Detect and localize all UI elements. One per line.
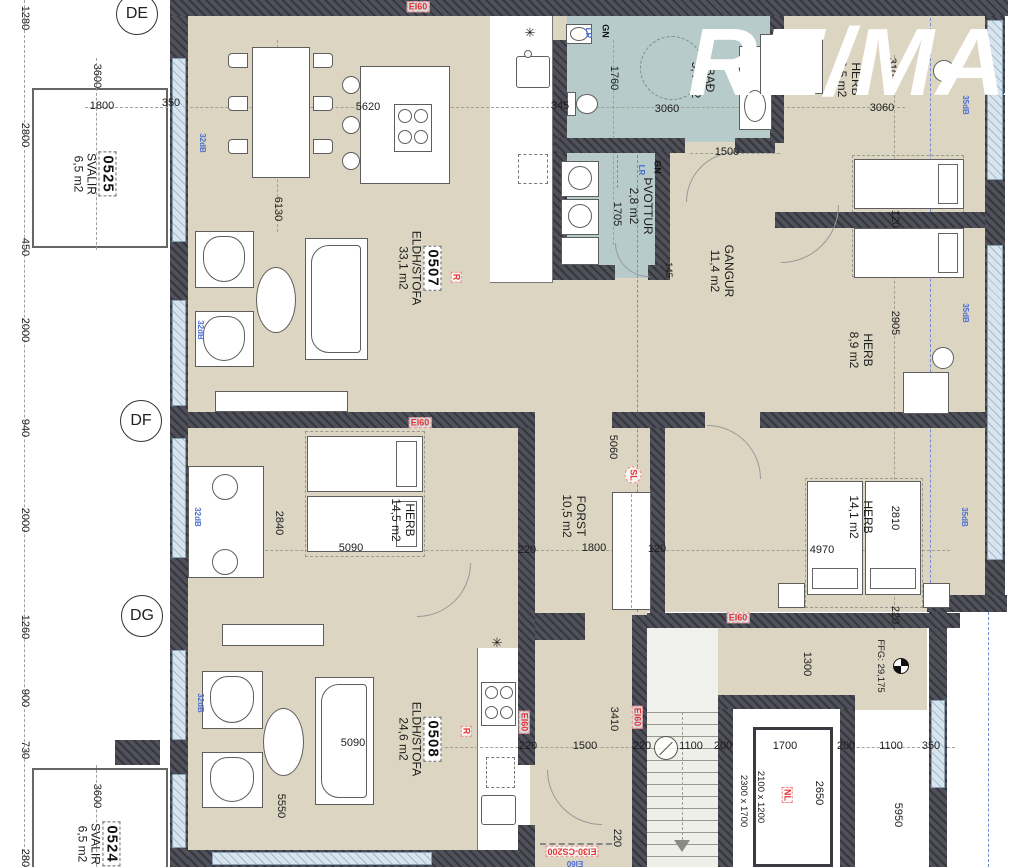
armchair-seat <box>203 236 245 282</box>
dim-1800-balcony: 1800 <box>90 101 114 113</box>
center-line <box>988 612 989 867</box>
cooktop-burner <box>485 706 498 719</box>
stairs-direction-arrow <box>674 840 690 852</box>
level-marker-icon <box>893 658 909 674</box>
dim-1760: 1760 <box>607 66 619 90</box>
pillow <box>938 233 958 273</box>
acoustic-32db-b: 32dB <box>196 320 204 340</box>
bar-stool <box>342 152 360 170</box>
window <box>172 774 186 848</box>
pillow <box>812 568 858 589</box>
pillow <box>938 164 958 204</box>
fixture-star-kitchen-0507: ✳ <box>525 26 536 40</box>
label-sl: SL <box>625 467 642 484</box>
closet-divider <box>631 494 632 608</box>
acoustic-35db-c: 35dB <box>960 507 968 527</box>
stool <box>932 347 954 369</box>
armchair-seat <box>210 676 254 723</box>
wall-mid <box>188 412 535 428</box>
acoustic-35db-b: 35dB <box>961 303 969 323</box>
window <box>172 650 186 740</box>
fixture-star-kitchen-0508: ✳ <box>492 636 503 650</box>
chair <box>313 96 333 111</box>
dim-450: 450 <box>18 238 30 256</box>
dim-5620: 5620 <box>356 102 380 114</box>
cooktop-burner <box>485 686 498 699</box>
label-ffg-level: FFG: 29,175 <box>875 639 885 692</box>
dim-1300: 1300 <box>800 652 812 676</box>
stool <box>212 474 238 500</box>
dim-1500-hall: 1500 <box>573 741 597 753</box>
dim-2905: 2905 <box>888 311 900 335</box>
room-label-herb-145: HERB14,5 m2 <box>390 498 416 541</box>
dim-1700: 1700 <box>773 741 797 753</box>
dim-1705: 1705 <box>610 202 622 226</box>
dim-220-herb141: 220 <box>888 606 900 624</box>
dim-5090-0508: 5090 <box>341 738 365 750</box>
dim-3600-top: 3600 <box>90 64 102 88</box>
dim-220-a: 220 <box>519 741 537 753</box>
dim-2810: 2810 <box>888 506 900 530</box>
dim-2000-b: 2000 <box>18 508 30 532</box>
grid-marker-DE: DE <box>116 0 158 35</box>
dim-350-bottom: 350 <box>922 741 940 753</box>
kitchen-sink <box>516 56 550 88</box>
dim-3600-bottom: 3600 <box>90 784 102 808</box>
dim-3060-bad: 3060 <box>655 104 679 116</box>
label-nl: NL <box>781 787 792 803</box>
dishwasher <box>486 757 515 788</box>
cooktop-burner <box>398 109 412 123</box>
pillow <box>870 568 916 589</box>
dim-200-b: 200 <box>837 741 855 753</box>
dim-940: 940 <box>18 419 30 437</box>
dim-lift-shaft: 2300 x 1700 <box>738 775 748 827</box>
dim-345: 345 <box>551 101 569 113</box>
desk <box>903 372 949 414</box>
tv-bench <box>222 624 324 646</box>
washer-door <box>568 166 592 190</box>
dim-2650: 2650 <box>812 781 824 805</box>
room-label-0525: 0525SVALIR6,5 m2 <box>72 151 117 196</box>
wall-stair-top <box>647 613 960 628</box>
fire-ei60-stair: EI60 <box>727 612 750 623</box>
room-label-gangur: GANGUR11,4 m2 <box>709 245 735 298</box>
window <box>172 438 186 558</box>
dim-5550: 5550 <box>274 794 286 818</box>
dim-5090-herb145: 5090 <box>339 543 363 555</box>
dim-lift-car: 2100 x 1200 <box>755 771 765 823</box>
cooktop-burner <box>500 686 513 699</box>
dim-350-top: 350 <box>162 98 180 110</box>
room-label-herb-141: HERB14,1 m2 <box>848 495 874 538</box>
dim-2800-bottom: 2800 <box>18 849 30 867</box>
dim-6130: 6130 <box>271 197 283 221</box>
dim-3410: 3410 <box>607 707 619 731</box>
dim-1100-b: 1100 <box>879 741 903 753</box>
cooktop-burner <box>414 109 428 123</box>
wall-hall-right <box>650 428 665 615</box>
label-gn-mid: GN <box>652 160 661 174</box>
cooktop-burner <box>414 130 428 144</box>
elevator-wall <box>718 709 733 867</box>
dim-220-b: 220 <box>633 741 651 753</box>
dim-5950: 5950 <box>891 803 903 827</box>
wall-hall-block <box>535 613 585 640</box>
wall-laundry-bottom <box>553 265 615 280</box>
toilet-bowl <box>576 94 598 114</box>
acoustic-32db-d: 32dB <box>196 693 204 713</box>
wall <box>115 740 160 765</box>
dim-1500-bad: 1500 <box>715 147 739 159</box>
label-ei60-blue: EI60 <box>567 859 583 867</box>
dishwasher <box>518 154 548 184</box>
elevator-wall <box>840 709 855 867</box>
dim-1100-a: 1100 <box>679 741 703 753</box>
armchair-seat <box>203 316 245 361</box>
grid-marker-DG: DG <box>121 595 163 637</box>
dim-2000-a: 2000 <box>18 318 30 342</box>
nightstand <box>778 583 805 608</box>
wall-mid <box>612 412 705 428</box>
room-label-0508: 0508ELDH/STOFA24,6 m2 <box>397 702 442 776</box>
coffee-table <box>263 708 304 776</box>
dim-900: 900 <box>18 689 30 707</box>
window <box>212 852 432 865</box>
label-lr-top: LR <box>584 28 592 39</box>
label-r-0507: R <box>450 272 461 283</box>
dim-1260: 1260 <box>18 615 30 639</box>
bar-stool <box>342 116 360 134</box>
kitchen-sink <box>481 795 516 825</box>
room-label-thvottur: ÞVOTTUR2,8 m2 <box>628 177 654 234</box>
dim-220-forst: 220 <box>518 545 536 557</box>
dim-4970: 4970 <box>810 545 834 557</box>
grid-marker-DF: DF <box>120 400 162 442</box>
label-r-0508: R <box>460 726 471 737</box>
label-gn-top: GN <box>600 24 609 38</box>
fire-ei60-hall-right: EI60 <box>631 706 642 729</box>
dim-730: 730 <box>18 741 30 759</box>
chair <box>313 139 333 154</box>
stairs-center-line <box>682 712 683 840</box>
room-label-herb-89: HERB8,9 m2 <box>848 332 874 369</box>
stool <box>212 549 238 575</box>
dining-table <box>252 47 310 178</box>
nightstand <box>923 583 950 608</box>
sofa-seat <box>311 245 361 353</box>
laundry-counter <box>561 237 599 265</box>
tv-bench <box>215 391 348 412</box>
pillow <box>396 441 417 487</box>
armchair-seat <box>210 757 254 802</box>
section-marker-icon <box>654 736 678 760</box>
coffee-table <box>256 267 296 333</box>
chair <box>228 96 248 111</box>
wall-hall-left <box>518 825 535 867</box>
dim-200-a: 200 <box>714 741 732 753</box>
room-label-forst: FORST10,5 m2 <box>561 494 587 537</box>
window <box>987 245 1003 560</box>
dim-120-beds: 120 <box>888 210 900 228</box>
room-label-0524: 0524SVALIR6,5 m2 <box>76 821 121 866</box>
fire-door-ei30: EI30-CS200 <box>545 845 598 856</box>
faucet <box>524 50 532 58</box>
chair <box>313 53 333 68</box>
chair <box>228 139 248 154</box>
cooktop-burner <box>398 130 412 144</box>
bar-stool <box>342 76 360 94</box>
acoustic-32db-a: 32dB <box>198 133 206 153</box>
wall-bath-bottom <box>735 138 775 153</box>
dim-220-hall: 220 <box>610 829 622 847</box>
fire-ei60-mid: EI60 <box>409 417 432 428</box>
dim-2800-top: 2800 <box>18 123 30 147</box>
dim-145: 145 <box>663 262 673 278</box>
floor-plan: RE/MAX 180035056203453060150030605090220… <box>0 0 1030 867</box>
remax-watermark: RE/MAX <box>688 8 1030 118</box>
fire-ei60-hall-left: EI60 <box>518 711 529 734</box>
room-label-0507: 0507ELDH/STOFA33,1 m2 <box>397 231 442 305</box>
cooktop-burner <box>500 706 513 719</box>
label-lr-mid: LR <box>637 165 645 176</box>
dryer-door <box>568 204 592 228</box>
dim-120-forst: 120 <box>648 544 666 556</box>
dim-1280: 1280 <box>18 6 30 30</box>
window <box>172 58 186 242</box>
elevator-wall <box>718 695 855 709</box>
dim-2840: 2840 <box>272 511 284 535</box>
chair <box>228 53 248 68</box>
dim-1800-forst: 1800 <box>582 543 606 555</box>
fire-ei60-top: EI60 <box>407 1 430 12</box>
wall-mid <box>760 412 985 428</box>
dim-5060: 5060 <box>606 435 618 459</box>
window <box>172 300 186 406</box>
acoustic-32db-c: 32dB <box>193 507 201 527</box>
